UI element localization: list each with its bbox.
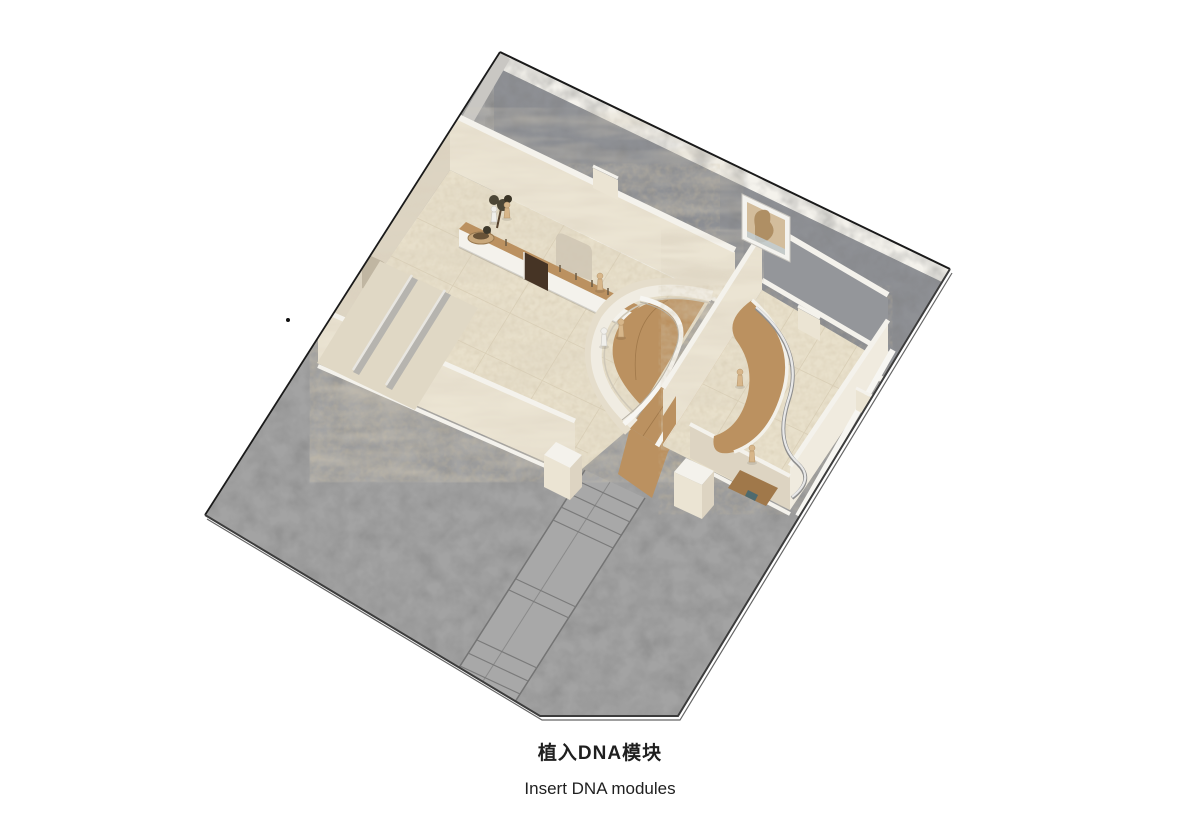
caption-english: Insert DNA modules bbox=[0, 780, 1200, 797]
reference-dot bbox=[286, 318, 290, 322]
rendering-canvas: 植入DNA模块 Insert DNA modules bbox=[0, 0, 1200, 840]
caption: 植入DNA模块 Insert DNA modules bbox=[0, 744, 1200, 797]
axonometric-rendering bbox=[0, 0, 1200, 840]
caption-chinese: 植入DNA模块 bbox=[0, 744, 1200, 763]
